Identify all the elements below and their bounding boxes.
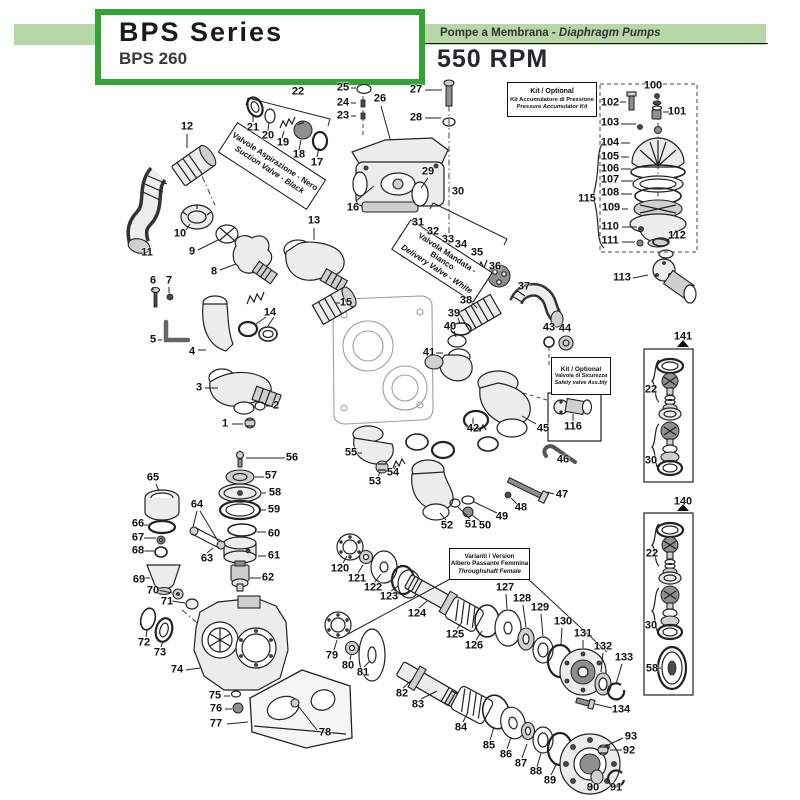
air-chamber-stack [190, 452, 285, 592]
safety-valve-kit-title: Kit / Optional [561, 366, 601, 374]
pump-head-manifold [351, 80, 455, 212]
valve-kit-panel-140 [644, 504, 693, 695]
exploded-parts-diagram: Valvole Aspirazione - Nero Suction Valve… [0, 0, 800, 800]
left-cup-stack [138, 484, 198, 647]
variant-label-it: Albero Passante Femmina [451, 560, 528, 567]
right-fittings [353, 290, 575, 521]
accumulator-kit-title: Kit / Optional [530, 88, 574, 96]
catalog-page: BPS Series BPS 260 Pompe a Membrana - Di… [0, 0, 800, 800]
safety-valve-kit-label-en: Safety valve Ass.bly [555, 380, 608, 387]
accumulator-kit-label-en: Pressure Accumulator Kit [517, 104, 588, 111]
pump-body-ghost [333, 296, 433, 424]
diagram-linework [0, 0, 800, 800]
accumulator-kit-label: Kit / Optional Kit Accumulatore di Press… [507, 82, 597, 117]
valve-kit-panel-141 [644, 340, 693, 482]
pressure-accumulator-kit [593, 92, 696, 303]
variant-label-en: Throughshaft Female [458, 568, 521, 575]
safety-valve-kit-label-it: Valvola di Sicurezza [555, 373, 607, 380]
variant-label: Varianti / Version Albero Passante Femmi… [449, 548, 530, 580]
variant-title: Varianti / Version [465, 553, 515, 560]
safety-valve-kit [548, 393, 601, 441]
safety-valve-kit-label: Kit / Optional Valvola di Sicurezza Safe… [551, 357, 611, 395]
accumulator-kit-label-it: Kit Accumulatore di Pressione [510, 97, 594, 104]
